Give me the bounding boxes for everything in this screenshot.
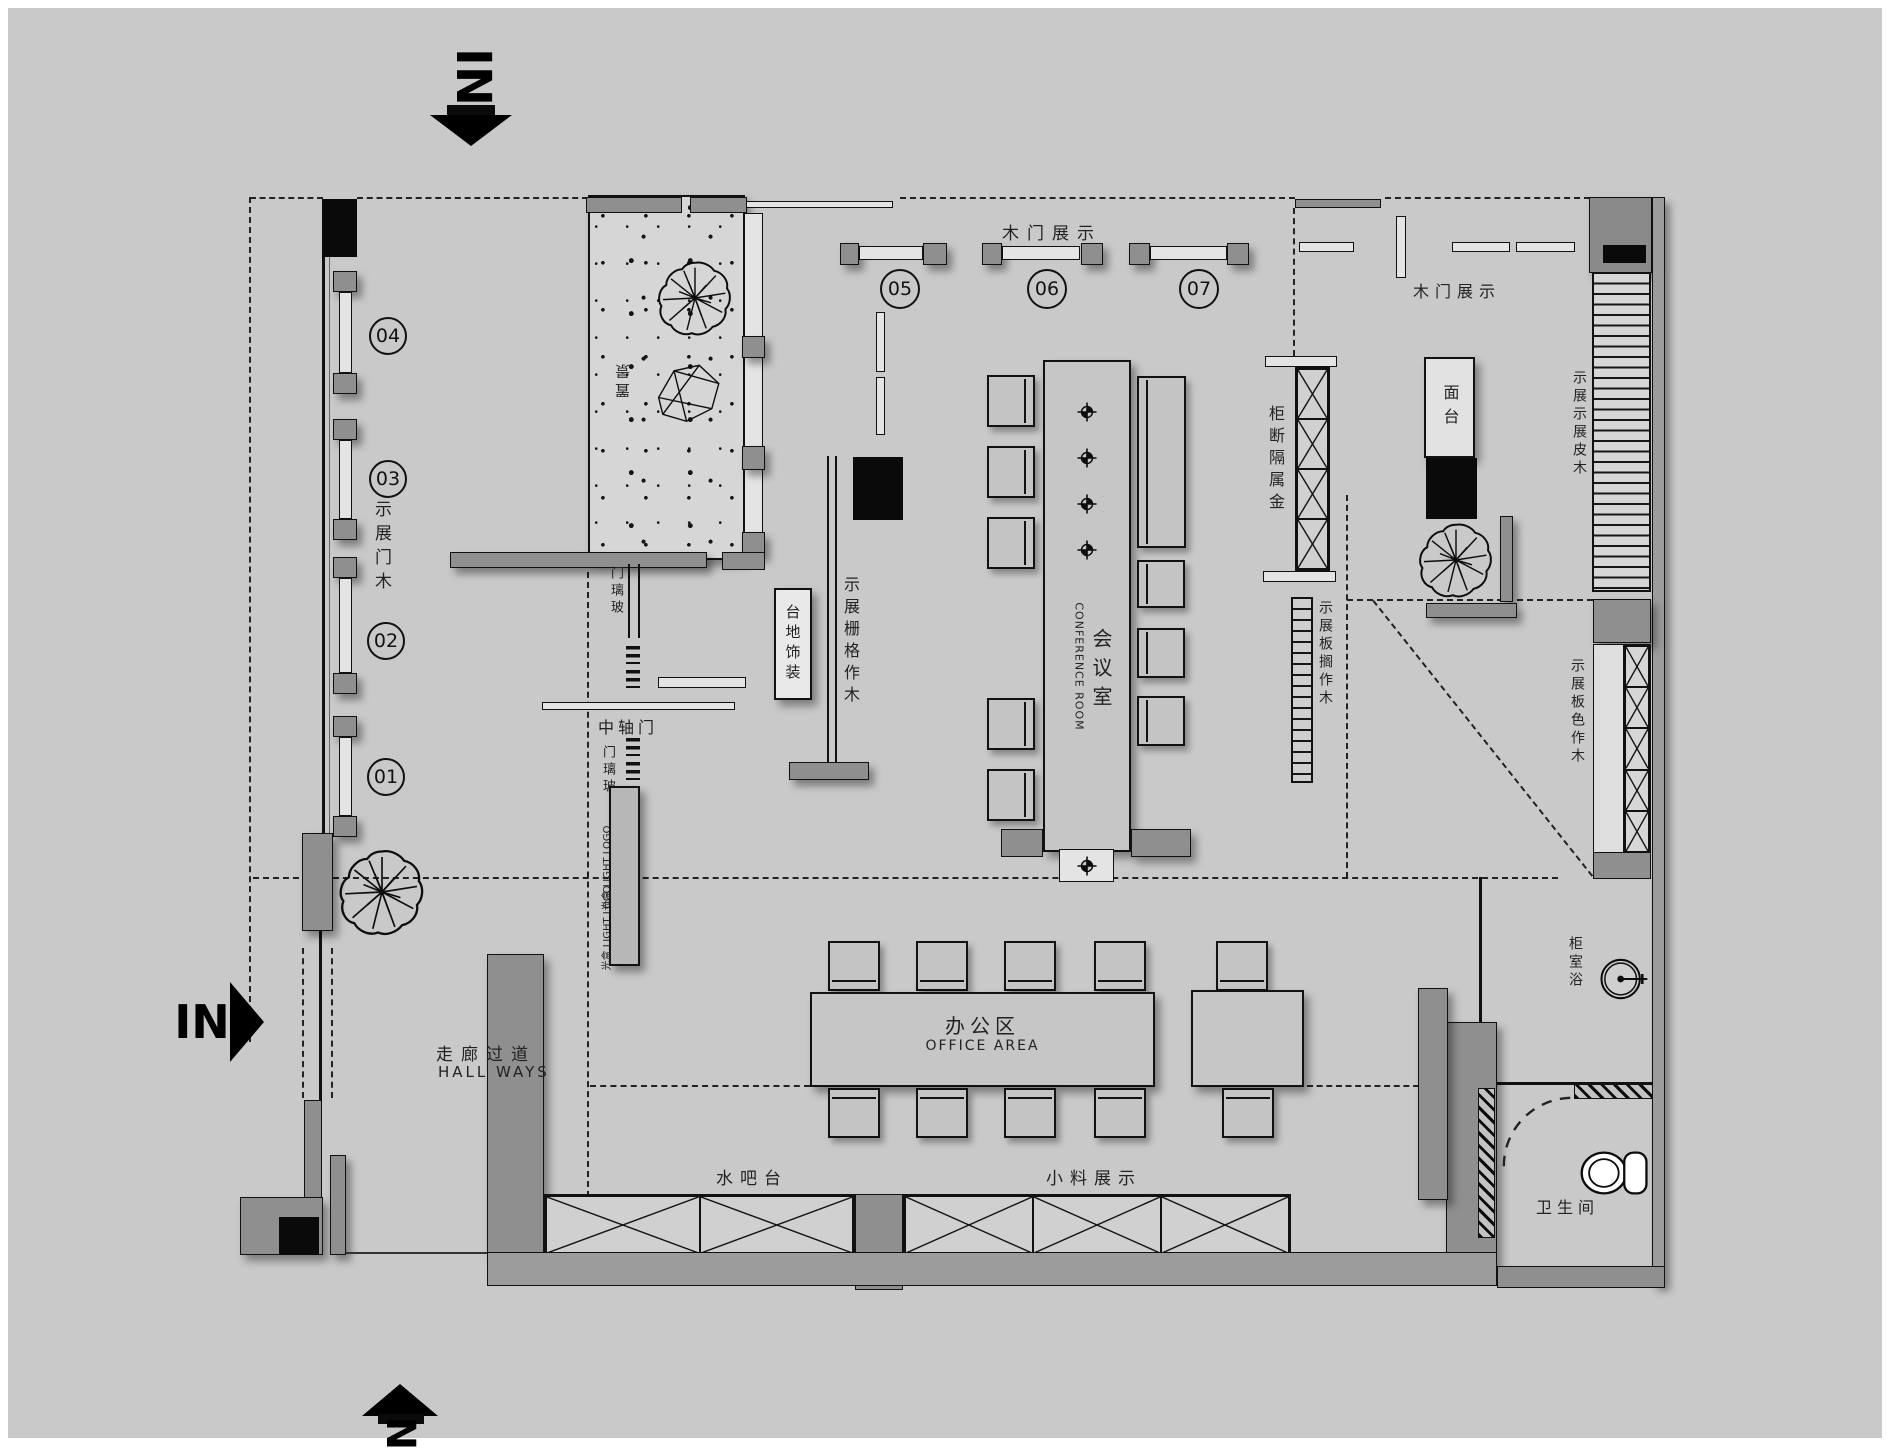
door-display-panel-02 [339,578,352,673]
office-chair [1094,1088,1146,1138]
door-hinge-mark [626,646,640,664]
wood-grille-label: 示展栅格作木 [836,576,862,741]
dashed-line-right-vertical [1346,495,1348,878]
left-entry-pillar [302,833,333,931]
office-chair [1222,1088,1274,1138]
door-display-panel-05 [859,246,923,260]
door-display-mount [333,373,357,394]
cabinet-cap [1265,356,1337,367]
light-box-column [609,786,640,966]
door-hinge-mark [626,762,640,780]
dashed-boundary-left [249,197,251,1042]
conference-chair [1137,628,1185,678]
entrance-in-label-bottom: IN [378,1396,422,1448]
dashed-line-office-right [1307,1085,1419,1087]
glass-door-label-upper: 门璃玻 [604,566,625,636]
dashed-line-diagonal [1372,600,1593,877]
door-display-mount [333,673,357,694]
light-logo-label-2: 光盒 LIGHT LOGO [598,878,610,978]
door-display-mount [1081,243,1103,265]
door-hinge-mark [626,670,640,688]
door-badge-02: 02 [367,622,405,660]
rock-icon [653,355,723,433]
door-display-panel-03 [339,440,352,519]
door-display-mount [982,243,1002,265]
entrance-in-label-top: IN [444,45,502,109]
door-display-panel [1299,242,1354,252]
wood-shelf-label: 示展板搁作木 [1313,600,1335,760]
door-display-panel [1516,242,1575,252]
door-display-mount [923,243,947,265]
decor-platform-tag: 台地饰装 [774,588,812,700]
small-material-counter [903,1194,1291,1256]
door-display-mount [1129,243,1150,265]
conference-chair [987,446,1035,498]
cabinet-cap [1263,571,1336,582]
credenza [1001,829,1043,857]
door-display-mount [840,243,859,265]
office-chair [1216,941,1268,991]
office-chair [1094,941,1146,991]
wall-segment [742,336,765,358]
credenza [1131,829,1191,857]
sliding-door-track [746,201,893,208]
page-frame-top [0,0,1892,8]
display-panel [1593,644,1624,854]
dashed-boundary-top-d [1385,197,1590,199]
tree-icon [655,258,735,338]
conference-chair [987,517,1035,569]
dashed-corridor-line-a [302,948,304,1098]
display-slat [876,377,885,435]
door-display-panel-04 [339,292,352,373]
office-side-table [1191,990,1304,1087]
water-bar-counter [544,1194,855,1256]
wood-color-board-rack [1623,644,1651,854]
small-material-label: 小料展示 [1046,1164,1161,1189]
countertop-unit: 面台 [1424,357,1475,458]
door-swing-arc [1500,1094,1576,1170]
metal-partition-cabinet [1295,367,1330,571]
dashed-line-partition-top [1293,208,1295,356]
conference-chair [1137,696,1185,746]
wood-veneer-rack [1592,272,1651,592]
black-slot [1603,245,1646,263]
office-chair [916,1088,968,1138]
power-socket-icon [1076,447,1098,469]
wall-segment [789,762,869,780]
platform-edge [722,552,765,570]
door-badge-01: 01 [367,758,405,796]
wall-segment [742,446,765,470]
page-frame-left [0,0,8,1448]
glass-door-leaf [628,564,640,638]
door-display-panel [1452,242,1510,252]
conference-room-label-en: CONFERENCE ROOM [1073,602,1086,732]
power-socket-icon [1076,855,1098,877]
wall-segment [1500,516,1513,602]
dashed-corridor-line-b [331,948,333,1098]
scenery-label: 置景 [612,346,636,398]
bottom-wall [487,1252,1497,1286]
wall-segment [1295,199,1381,208]
hallway-label-cn: 走廊过道 [436,1040,561,1065]
door-display-panel-01 [339,737,352,816]
wall-segment [304,1100,322,1200]
door-display-panel-07 [1150,246,1227,260]
toilet-icon [1578,1146,1652,1200]
office-area-label-cn: 办公区 [840,1010,1125,1039]
wall-segment [1497,1266,1665,1288]
conference-table [1043,360,1131,852]
door-display-mount [1227,243,1249,265]
office-chair [1004,1088,1056,1138]
wood-shelf-rack [1291,597,1313,783]
hatched-wall [1574,1084,1653,1099]
wall-segment [1418,988,1448,1200]
conference-chair [987,375,1035,427]
door-display-panel-06 [1002,246,1080,260]
door-display-mount [333,816,357,837]
hatched-wall [1478,1088,1495,1238]
door-track [658,677,746,688]
platform-edge [450,552,707,568]
dashed-line-office-left [590,1085,810,1087]
dashed-zone-line-vertical [587,572,589,1197]
wall-column-black [279,1217,319,1255]
power-socket-icon [1076,401,1098,423]
pivot-door-leaf [542,702,735,710]
wood-door-display-label-top-right: 木门展示 [1413,278,1523,302]
door-badge-04: 04 [369,317,407,355]
door-display-mount [333,271,357,292]
wall-segment [330,1155,346,1255]
decor-platform-label: 台地饰装 [783,604,804,684]
page-frame-right [1882,0,1892,1448]
wood-door-display-label-top: 木门展示 [1002,219,1122,244]
dashed-boundary-top-c [900,197,1295,199]
conference-room-label-cn: 会议室 [1090,628,1116,738]
page-frame-bottom [0,1438,1892,1448]
door-badge-03: 03 [369,460,407,498]
door-hinge-mark [626,738,640,756]
office-area-label-en: OFFICE AREA [840,1038,1125,1054]
tree-icon [1416,520,1496,600]
door-badge-06: 06 [1027,269,1067,309]
conference-chair [1137,560,1185,608]
office-chair [916,941,968,991]
pivot-door-label: 中轴门 [598,714,688,738]
water-bar-label: 水吧台 [716,1164,816,1189]
left-wall-line [322,257,325,834]
glass-wall-frame [744,213,763,558]
left-wall-line-inner [329,257,330,834]
right-outer-wall [1652,197,1665,1285]
power-socket-icon [1076,493,1098,515]
wood-color-board-label: 示展板色作木 [1564,658,1587,813]
door-display-mount [333,519,357,540]
dashed-zone-line-middle [253,877,1558,879]
door-display-mount [333,716,357,737]
metal-cabinet-label: 柜断隔属金 [1263,405,1287,570]
entrance-arrow-down-icon [430,115,512,146]
conference-chair [987,769,1035,821]
countertop-label: 面台 [1438,384,1462,432]
wall-segment [1426,603,1517,618]
office-chair [828,941,880,991]
door-display-mount [333,557,357,578]
wall-segment [1593,852,1651,879]
wood-veneer-label: 示展示展皮木 [1568,370,1589,525]
black-display-block [853,457,903,520]
sink-icon [1599,955,1649,1003]
tree-icon [336,846,428,938]
office-chair [1004,941,1056,991]
wall-block-top-left [322,199,357,257]
wood-door-display-label-left: 示展门木 [370,500,394,615]
power-socket-icon [1076,539,1098,561]
door-display-mount [333,419,357,440]
bath-cabinet-label: 柜室浴 [1564,936,1585,1016]
black-display-block [1426,458,1477,519]
wall-segment [586,197,682,213]
dashed-boundary-top-b [357,197,588,199]
conference-bench [1137,376,1186,548]
entrance-in-label-left: IN [172,996,232,1048]
hallway-label-en: HALL WAYS [438,1063,548,1081]
wall-segment [690,197,747,213]
bar-end-block [487,954,544,1254]
display-slat [876,312,885,372]
office-chair [828,1088,880,1138]
corridor-wall-line [319,930,322,1102]
wall-segment [1593,599,1651,643]
floor-plan-canvas: 04 03 02 01 示展门木 置景 05 06 07 木门展示 台地饰装 示… [0,0,1892,1448]
entrance-arrow-right-icon [230,982,264,1062]
door-badge-05: 05 [880,269,920,309]
door-badge-07: 07 [1179,269,1219,309]
conference-chair [987,698,1035,750]
toilet-room-label: 卫生间 [1536,1194,1626,1218]
dashed-boundary-top-a [250,197,323,199]
door-display-panel [1396,216,1406,278]
